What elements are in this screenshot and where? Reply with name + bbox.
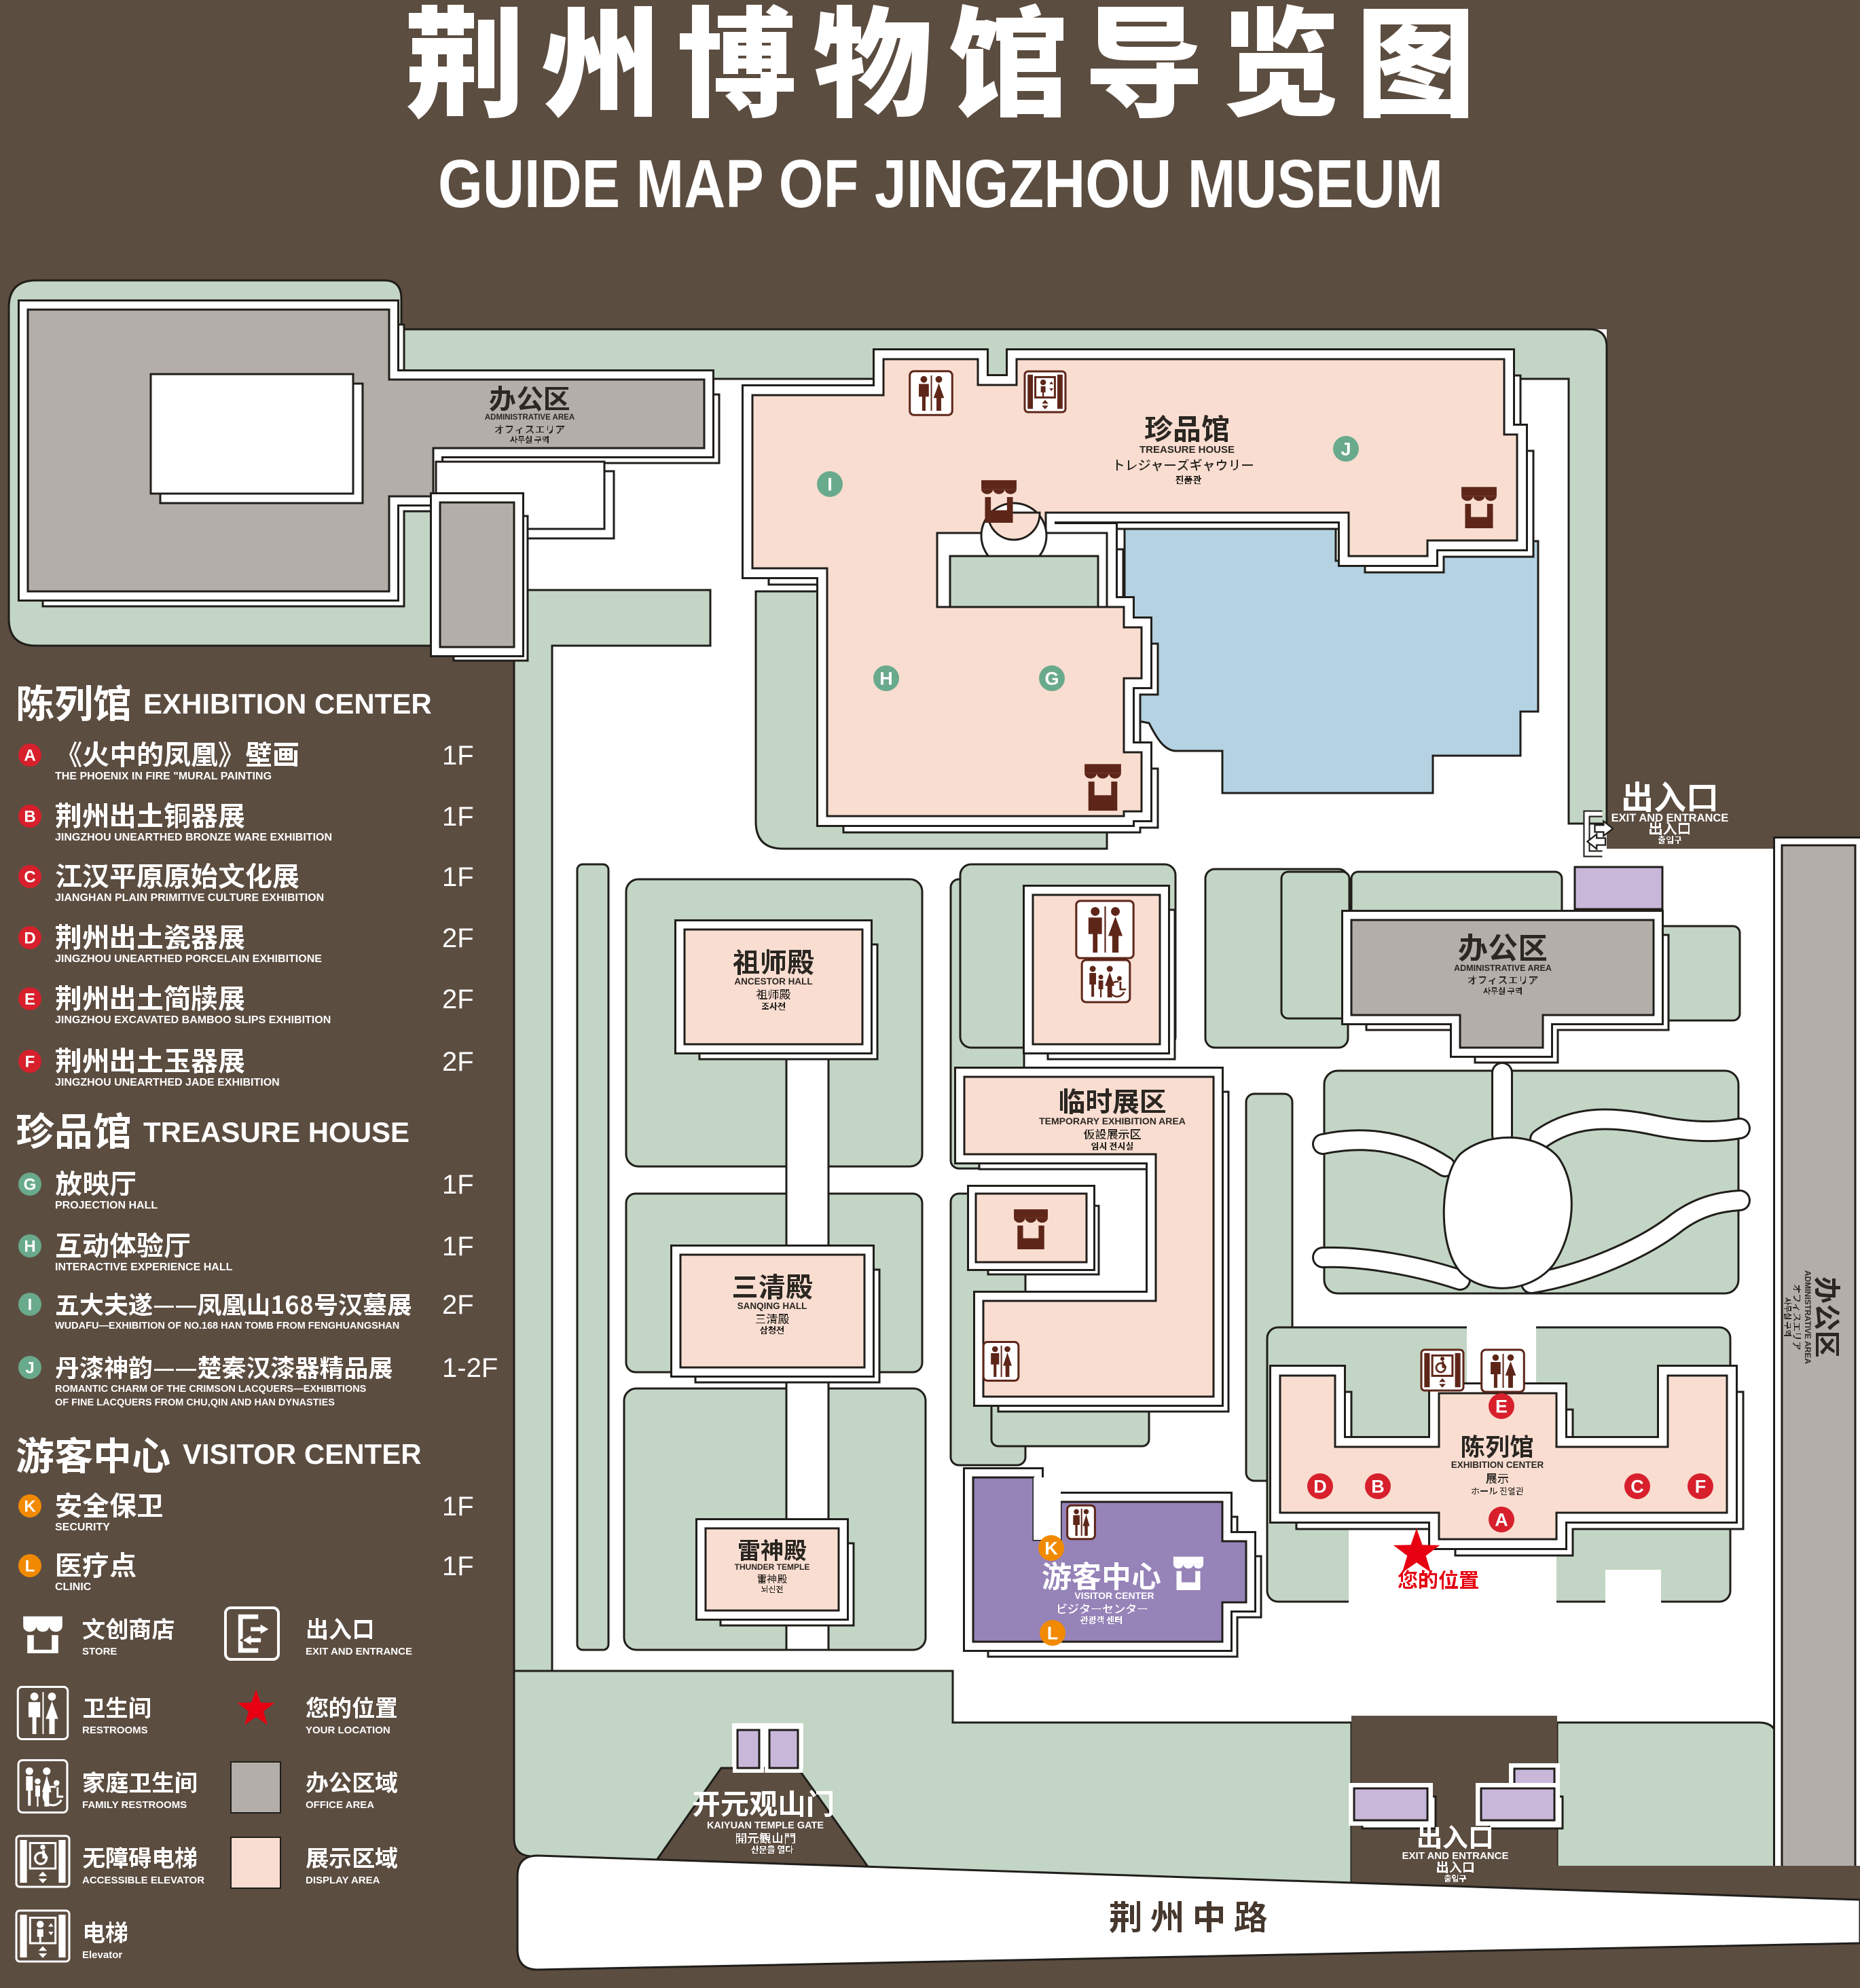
svg-text:INTERACTIVE EXPERIENCE HALL: INTERACTIVE EXPERIENCE HALL xyxy=(55,1262,233,1273)
svg-text:A: A xyxy=(24,747,35,765)
svg-text:CLINIC: CLINIC xyxy=(55,1581,92,1593)
svg-text:THE PHOENIX IN FIRE "MURAL PAI: THE PHOENIX IN FIRE "MURAL PAINTING xyxy=(55,771,272,782)
svg-text:K: K xyxy=(24,1498,36,1516)
svg-text:L: L xyxy=(1047,1623,1059,1643)
svg-text:1F: 1F xyxy=(442,802,474,832)
svg-text:VISITOR CENTER: VISITOR CENTER xyxy=(1074,1590,1154,1601)
svg-text:ANCESTOR HALL: ANCESTOR HALL xyxy=(734,976,812,987)
svg-text:H: H xyxy=(24,1238,35,1256)
svg-text:VISITOR CENTER: VISITOR CENTER xyxy=(183,1438,422,1470)
svg-text:1F: 1F xyxy=(442,1492,474,1522)
svg-text:OFFICE AREA: OFFICE AREA xyxy=(306,1799,374,1811)
svg-text:B: B xyxy=(1371,1476,1385,1496)
svg-text:JINGZHOU UNEARTHED BRONZE WARE: JINGZHOU UNEARTHED BRONZE WARE EXHIBITIO… xyxy=(55,832,332,843)
svg-text:SANQING HALL: SANQING HALL xyxy=(737,1301,807,1311)
svg-text:1F: 1F xyxy=(442,862,474,892)
svg-text:D: D xyxy=(24,929,35,948)
svg-text:J: J xyxy=(25,1359,34,1378)
svg-text:RESTROOMS: RESTROOMS xyxy=(82,1725,148,1736)
svg-text:E: E xyxy=(1495,1396,1508,1416)
svg-text:F: F xyxy=(25,1053,35,1071)
svg-text:EXHIBITION CENTER: EXHIBITION CENTER xyxy=(1451,1460,1544,1470)
svg-text:D: D xyxy=(1313,1476,1327,1496)
svg-text:KAIYUAN TEMPLE GATE: KAIYUAN TEMPLE GATE xyxy=(707,1820,824,1831)
svg-text:FAMILY RESTROOMS: FAMILY RESTROOMS xyxy=(82,1799,187,1811)
svg-text:ADMINISTRATIVE AREA: ADMINISTRATIVE AREA xyxy=(1803,1270,1812,1364)
svg-text:ADMINISTRATIVE AREA: ADMINISTRATIVE AREA xyxy=(485,413,575,422)
svg-text:ADMINISTRATIVE AREA: ADMINISTRATIVE AREA xyxy=(1454,963,1552,973)
svg-text:A: A xyxy=(1495,1509,1508,1530)
svg-text:1-2F: 1-2F xyxy=(442,1353,498,1383)
svg-text:JINGZHOU UNEARTHED PORCELAIN E: JINGZHOU UNEARTHED PORCELAIN EXHIBITIONE xyxy=(55,953,322,965)
svg-text:G: G xyxy=(1044,668,1059,688)
svg-text:TREASURE HOUSE: TREASURE HOUSE xyxy=(143,1116,409,1148)
svg-text:EXHIBITION CENTER: EXHIBITION CENTER xyxy=(143,688,432,720)
svg-text:L: L xyxy=(25,1558,35,1576)
svg-text:ROMANTIC CHARM OF THE CRIMSON: ROMANTIC CHARM OF THE CRIMSON LACQUERS—E… xyxy=(55,1384,367,1395)
svg-text:YOUR LOCATION: YOUR LOCATION xyxy=(306,1725,390,1736)
svg-text:ACCESSIBLE ELEVATOR: ACCESSIBLE ELEVATOR xyxy=(82,1875,204,1886)
svg-text:EXIT AND ENTRANCE: EXIT AND ENTRANCE xyxy=(306,1646,412,1657)
svg-text:K: K xyxy=(1044,1538,1058,1558)
svg-text:JIANGHAN PLAIN PRIMITIVE CULTU: JIANGHAN PLAIN PRIMITIVE CULTURE EXHIBIT… xyxy=(55,892,324,904)
svg-text:1F: 1F xyxy=(442,1551,474,1581)
svg-text:1F: 1F xyxy=(442,1170,474,1200)
svg-text:GUIDE MAP OF JINGZHOU MUSEUM: GUIDE MAP OF JINGZHOU MUSEUM xyxy=(438,146,1443,222)
svg-text:SECURITY: SECURITY xyxy=(55,1522,110,1533)
svg-text:2F: 2F xyxy=(442,923,474,953)
svg-text:WUDAFU—EXHIBITION OF NO.168 HA: WUDAFU—EXHIBITION OF NO.168 HAN TOMB FRO… xyxy=(55,1321,399,1331)
svg-text:JINGZHOU EXCAVATED BAMBOO SLIP: JINGZHOU EXCAVATED BAMBOO SLIPS EXHIBITI… xyxy=(55,1014,331,1026)
svg-text:1F: 1F xyxy=(442,741,474,771)
svg-text:THUNDER TEMPLE: THUNDER TEMPLE xyxy=(735,1562,810,1572)
svg-text:Elevator: Elevator xyxy=(82,1949,122,1961)
svg-text:1F: 1F xyxy=(442,1232,474,1262)
svg-text:JINGZHOU UNEARTHED JADE EXHIBI: JINGZHOU UNEARTHED JADE EXHIBITION xyxy=(55,1077,280,1088)
svg-text:TREASURE HOUSE: TREASURE HOUSE xyxy=(1139,444,1235,456)
svg-text:TEMPORARY EXHIBITION AREA: TEMPORARY EXHIBITION AREA xyxy=(1039,1116,1186,1126)
svg-text:2F: 2F xyxy=(442,1047,474,1077)
svg-text:H: H xyxy=(879,668,893,688)
svg-text:G: G xyxy=(24,1176,37,1194)
svg-text:F: F xyxy=(1695,1476,1707,1496)
svg-text:E: E xyxy=(24,991,35,1009)
svg-text:J: J xyxy=(1341,439,1351,459)
svg-text:I: I xyxy=(28,1296,33,1314)
svg-text:B: B xyxy=(24,808,35,826)
svg-text:2F: 2F xyxy=(442,984,474,1014)
svg-text:PROJECTION HALL: PROJECTION HALL xyxy=(55,1200,158,1211)
svg-text:DISPLAY AREA: DISPLAY AREA xyxy=(306,1875,380,1886)
svg-text:I: I xyxy=(827,474,833,494)
svg-text:C: C xyxy=(24,868,35,887)
svg-text:2F: 2F xyxy=(442,1290,474,1320)
svg-text:EXIT AND ENTRANCE: EXIT AND ENTRANCE xyxy=(1402,1850,1509,1862)
svg-text:OF FINE LACQUERS FROM CHU,QIN: OF FINE LACQUERS FROM CHU,QIN AND HAN DY… xyxy=(55,1397,335,1408)
svg-text:C: C xyxy=(1630,1476,1644,1496)
svg-text:STORE: STORE xyxy=(82,1646,117,1657)
svg-text:EXIT AND ENTRANCE: EXIT AND ENTRANCE xyxy=(1611,812,1729,824)
